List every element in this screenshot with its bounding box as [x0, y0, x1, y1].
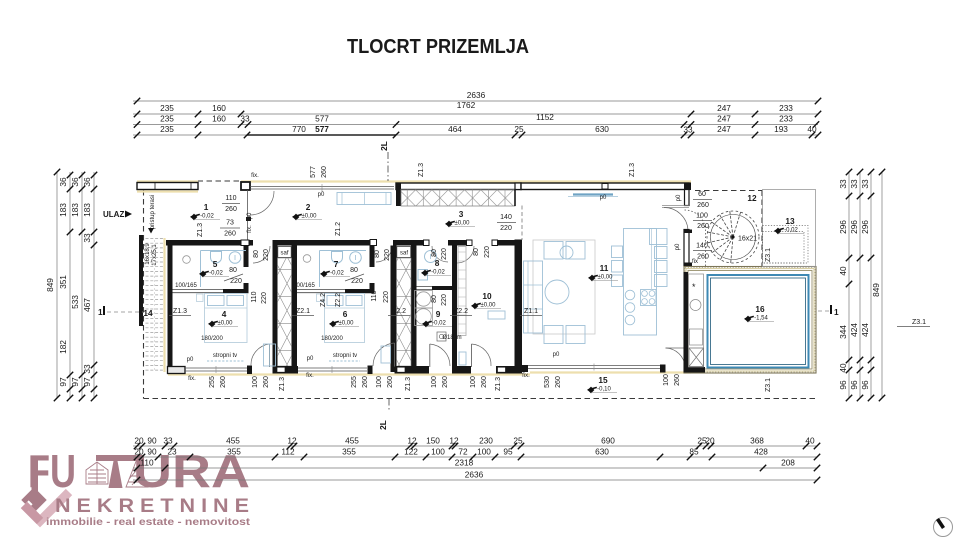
svg-text:Z1.1: Z1.1 [524, 308, 538, 315]
svg-text:183: 183 [70, 203, 80, 217]
svg-text:33: 33 [860, 179, 870, 189]
svg-text:770: 770 [292, 124, 306, 134]
svg-text:17x25,1: 17x25,1 [152, 244, 158, 266]
svg-text:577: 577 [310, 166, 317, 178]
svg-text:80: 80 [374, 250, 381, 258]
svg-text:1: 1 [204, 202, 209, 212]
svg-text:Z1.3: Z1.3 [629, 163, 636, 177]
svg-text:233: 233 [779, 103, 793, 113]
svg-text:20: 20 [705, 436, 715, 446]
svg-text:1: 1 [834, 307, 839, 317]
svg-text:12: 12 [407, 436, 417, 446]
svg-text:230: 230 [479, 436, 493, 446]
svg-text:247: 247 [717, 124, 731, 134]
svg-text:577: 577 [315, 114, 329, 124]
svg-text:13: 13 [785, 216, 795, 226]
svg-text:p0: p0 [187, 357, 194, 363]
svg-text:7: 7 [334, 259, 339, 269]
svg-text:2L: 2L [379, 141, 389, 151]
svg-text:±0,00: ±0,00 [481, 303, 497, 309]
svg-text:p0: p0 [676, 194, 682, 201]
svg-text:96: 96 [849, 380, 859, 390]
svg-text:fix.: fix. [188, 376, 196, 382]
svg-text:100: 100 [376, 376, 383, 388]
svg-text:stropni tv: stropni tv [213, 353, 237, 359]
svg-text:220: 220 [441, 248, 448, 260]
svg-text:8: 8 [435, 258, 440, 268]
svg-text:fix: fix [692, 259, 698, 265]
svg-text:849: 849 [871, 283, 881, 297]
svg-text:Z1.3: Z1.3 [418, 163, 425, 177]
svg-text:20: 20 [134, 447, 144, 457]
svg-text:220: 220 [261, 292, 268, 304]
svg-text:-0,02: -0,02 [200, 214, 214, 220]
svg-text:p0: p0 [600, 195, 607, 201]
svg-text:100: 100 [431, 376, 438, 388]
svg-text:260: 260 [674, 374, 681, 386]
svg-text:464: 464 [448, 124, 462, 134]
svg-text:6: 6 [343, 309, 348, 319]
svg-text:±0,00: ±0,00 [455, 221, 471, 227]
svg-text:Z2.2: Z2.2 [392, 308, 406, 315]
svg-text:fix.: fix. [251, 173, 259, 179]
svg-text:255: 255 [209, 376, 216, 388]
svg-text:Z2.2: Z2.2 [454, 308, 468, 315]
svg-text:saf: saf [400, 251, 408, 257]
svg-text:260: 260 [224, 231, 236, 238]
svg-text:90: 90 [147, 436, 157, 446]
svg-text:2636: 2636 [467, 90, 486, 100]
svg-text:85: 85 [689, 447, 699, 457]
svg-text:455: 455 [345, 436, 359, 446]
svg-text:25: 25 [514, 124, 524, 134]
svg-text:260: 260 [321, 166, 328, 178]
svg-text:4: 4 [222, 309, 227, 319]
svg-text:36: 36 [58, 177, 68, 187]
svg-text:150: 150 [426, 436, 440, 446]
svg-text:260: 260 [697, 223, 709, 230]
svg-text:97: 97 [58, 377, 68, 387]
svg-text:80: 80 [229, 267, 237, 274]
svg-text:-0,02: -0,02 [209, 271, 223, 277]
svg-text:220: 220 [384, 249, 391, 261]
svg-text:2636: 2636 [465, 470, 484, 480]
svg-text:455: 455 [226, 436, 240, 446]
svg-text:23: 23 [167, 447, 177, 457]
svg-text:Z1.3: Z1.3 [197, 223, 204, 237]
svg-text:-0,10: -0,10 [597, 387, 611, 393]
svg-text:233: 233 [779, 114, 793, 124]
svg-text:100: 100 [477, 447, 491, 457]
svg-text:260: 260 [387, 376, 394, 388]
svg-text:1: 1 [98, 307, 103, 317]
svg-text:TLOCRT PRIZEMLJA: TLOCRT PRIZEMLJA [347, 36, 529, 58]
svg-text:2: 2 [306, 202, 311, 212]
svg-text:-0,02: -0,02 [432, 321, 446, 327]
svg-text:255: 255 [351, 376, 358, 388]
svg-text:260: 260 [362, 376, 369, 388]
svg-text:260: 260 [220, 376, 227, 388]
svg-text:424: 424 [860, 323, 870, 337]
svg-text:p0: p0 [675, 243, 681, 250]
svg-text:p0: p0 [307, 356, 314, 362]
svg-text:16x18,9: 16x18,9 [145, 243, 151, 265]
svg-text:424: 424 [849, 323, 859, 337]
svg-text:33: 33 [82, 364, 92, 374]
svg-text:3: 3 [459, 209, 464, 219]
svg-text:N E K R E T N I N E: N E K R E T N I N E [55, 496, 249, 517]
svg-text:110: 110 [225, 195, 236, 202]
svg-text:100: 100 [431, 447, 445, 457]
svg-text:16x21: 16x21 [738, 236, 757, 243]
svg-text:193: 193 [774, 124, 788, 134]
svg-text:140: 140 [500, 214, 512, 221]
svg-text:33: 33 [82, 233, 92, 243]
svg-text:±0,00: ±0,00 [218, 321, 234, 327]
svg-text:260: 260 [481, 376, 488, 388]
svg-text:16: 16 [755, 304, 765, 314]
svg-text:15: 15 [598, 375, 608, 385]
svg-text:260: 260 [697, 254, 709, 261]
svg-text:33: 33 [163, 436, 173, 446]
svg-text:33: 33 [683, 125, 693, 135]
svg-text:220: 220 [441, 294, 448, 306]
svg-text:110: 110 [251, 291, 258, 302]
svg-text:220: 220 [230, 278, 242, 285]
svg-text:96: 96 [860, 380, 870, 390]
svg-text:183: 183 [58, 203, 68, 217]
svg-text:72: 72 [458, 447, 468, 457]
svg-text:fix.: fix. [247, 225, 253, 233]
svg-text:±0,00: ±0,00 [339, 321, 355, 327]
svg-text:saf: saf [280, 251, 288, 257]
svg-text:100: 100 [663, 374, 670, 386]
svg-text:260: 260 [442, 376, 449, 388]
svg-text:100: 100 [470, 376, 477, 388]
svg-text:40: 40 [838, 363, 848, 373]
svg-text:36: 36 [70, 177, 80, 187]
svg-text:355: 355 [342, 447, 356, 457]
svg-text:80: 80 [473, 248, 480, 256]
svg-text:467: 467 [82, 298, 92, 312]
svg-text:368: 368 [750, 436, 764, 446]
svg-text:40: 40 [807, 124, 817, 134]
svg-text:296: 296 [838, 220, 848, 234]
svg-text:25: 25 [513, 436, 523, 446]
svg-text:80: 80 [253, 250, 260, 258]
svg-text:97: 97 [82, 377, 92, 387]
svg-text:Z1.3: Z1.3 [279, 377, 286, 391]
svg-text:630: 630 [595, 447, 609, 457]
svg-text:p0: p0 [247, 212, 253, 219]
svg-text:12: 12 [747, 193, 757, 203]
svg-text:260: 260 [697, 202, 709, 209]
svg-text:630: 630 [595, 124, 609, 134]
svg-text:Z1.2: Z1.2 [335, 222, 342, 236]
svg-text:Z1.3: Z1.3 [173, 308, 187, 315]
svg-text:183: 183 [82, 203, 92, 217]
svg-text:100/165: 100/165 [293, 283, 315, 289]
svg-text:40: 40 [805, 436, 815, 446]
svg-text:Z3.1: Z3.1 [765, 378, 772, 392]
svg-text:220: 220 [263, 249, 270, 261]
svg-text:182: 182 [58, 340, 68, 354]
svg-text:100/165: 100/165 [175, 283, 197, 289]
svg-text:Z3.1: Z3.1 [912, 319, 926, 326]
svg-text:stropni tv: stropni tv [333, 353, 357, 359]
svg-text:180/200: 180/200 [201, 336, 223, 342]
svg-text:*: * [692, 282, 696, 292]
svg-text:260: 260 [225, 206, 237, 213]
svg-text:11: 11 [600, 263, 609, 273]
svg-text:Z1.3: Z1.3 [495, 377, 502, 391]
svg-text:208: 208 [781, 458, 795, 468]
svg-text:100: 100 [252, 376, 259, 388]
svg-text:90: 90 [147, 447, 157, 457]
svg-text:60: 60 [698, 191, 706, 198]
svg-text:p0: p0 [553, 352, 560, 358]
svg-text:344: 344 [838, 325, 848, 339]
svg-text:80: 80 [431, 295, 438, 303]
svg-text:p0: p0 [318, 192, 325, 198]
svg-text:220: 220 [500, 225, 512, 232]
svg-text:Z3.1: Z3.1 [765, 248, 772, 262]
svg-text:160: 160 [212, 103, 226, 113]
svg-text:220: 220 [484, 246, 491, 258]
svg-text:Z1.3: Z1.3 [405, 377, 412, 391]
svg-text:-0,02: -0,02 [431, 270, 445, 276]
svg-text:296: 296 [860, 220, 870, 234]
svg-text:122: 122 [404, 447, 418, 457]
svg-text:110: 110 [371, 290, 378, 301]
svg-text:-0,02: -0,02 [330, 271, 344, 277]
svg-text:97: 97 [70, 377, 80, 387]
svg-text:73: 73 [226, 220, 234, 227]
svg-text:247: 247 [717, 103, 731, 113]
svg-text:577: 577 [315, 124, 329, 134]
svg-text:14: 14 [143, 308, 153, 318]
svg-text:20: 20 [134, 436, 144, 446]
svg-text:1152: 1152 [536, 112, 554, 122]
svg-text:247: 247 [717, 114, 731, 124]
svg-text:9: 9 [436, 309, 441, 319]
svg-text:fix.: fix. [522, 373, 530, 379]
svg-text:235: 235 [160, 103, 174, 113]
svg-text:10: 10 [482, 291, 492, 301]
svg-text:33: 33 [849, 179, 859, 189]
svg-text:Ø18cm: Ø18cm [442, 335, 461, 341]
svg-text:36: 36 [82, 177, 92, 187]
svg-text:690: 690 [601, 436, 615, 446]
svg-text:Z2.1: Z2.1 [296, 308, 310, 315]
svg-text:2L: 2L [378, 420, 388, 430]
svg-text:260: 260 [555, 376, 562, 388]
svg-text:±0,00: ±0,00 [598, 275, 614, 281]
svg-text:ULAZ: ULAZ [103, 210, 124, 219]
svg-text:112: 112 [281, 447, 295, 457]
svg-text:12: 12 [449, 436, 459, 446]
svg-text:pristup terasi: pristup terasi [150, 195, 156, 229]
svg-text:80: 80 [350, 267, 358, 274]
svg-text:533: 533 [70, 295, 80, 309]
svg-text:235: 235 [160, 114, 174, 124]
svg-text:±0,00: ±0,00 [302, 214, 318, 220]
svg-text:2318: 2318 [455, 458, 474, 468]
svg-text:428: 428 [754, 447, 768, 457]
svg-text:95: 95 [503, 447, 513, 457]
svg-text:100: 100 [696, 213, 708, 220]
svg-text:fix.: fix. [306, 373, 314, 379]
svg-text:351: 351 [58, 275, 68, 289]
svg-text:5: 5 [213, 259, 218, 269]
svg-text:160: 160 [212, 114, 226, 124]
svg-text:235: 235 [160, 124, 174, 134]
svg-text:96: 96 [838, 380, 848, 390]
svg-text:Z4.2: Z4.2 [320, 293, 327, 307]
svg-text:12: 12 [287, 436, 297, 446]
svg-text:33: 33 [838, 179, 848, 189]
svg-text:80: 80 [431, 249, 438, 257]
svg-text:110: 110 [140, 458, 154, 468]
svg-text:40: 40 [838, 266, 848, 276]
svg-text:Z2.2: Z2.2 [335, 293, 342, 307]
svg-text:355: 355 [227, 447, 241, 457]
svg-text:-0,02: -0,02 [784, 228, 798, 234]
svg-text:849: 849 [45, 278, 55, 292]
svg-text:220: 220 [383, 291, 390, 303]
svg-text:33: 33 [240, 114, 250, 124]
svg-text:220: 220 [351, 278, 363, 285]
svg-text:180/200: 180/200 [321, 336, 343, 342]
svg-text:260: 260 [263, 376, 270, 388]
svg-text:296: 296 [849, 220, 859, 234]
svg-text:530: 530 [544, 376, 551, 388]
svg-text:140: 140 [696, 243, 708, 250]
svg-text:immobilie - real estate - nemo: immobilie - real estate - nemovitost [46, 516, 251, 528]
svg-text:-1,54: -1,54 [754, 316, 768, 322]
svg-text:1762: 1762 [457, 100, 476, 110]
